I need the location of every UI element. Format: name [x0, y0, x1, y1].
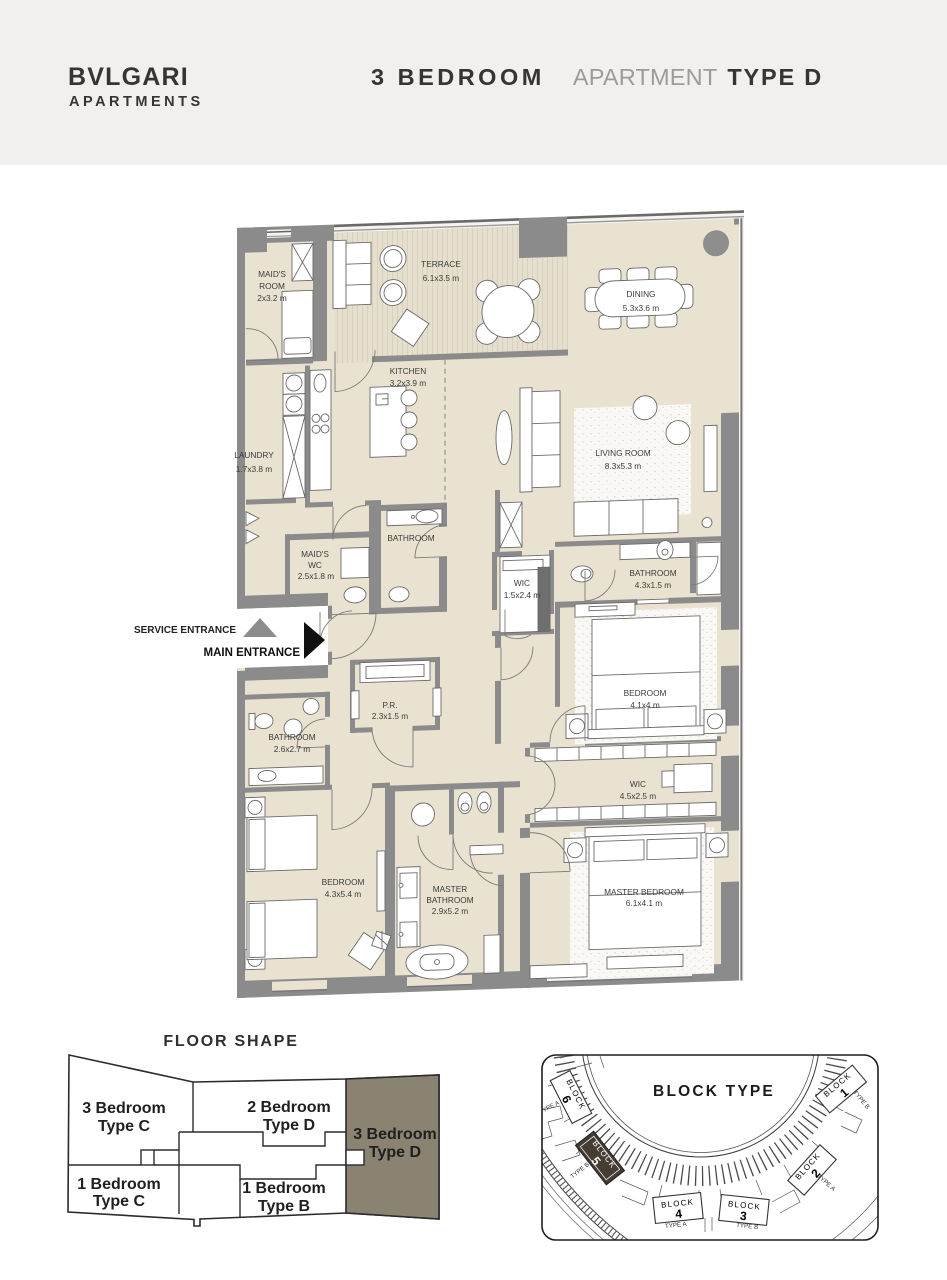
- svg-text:Type C: Type C: [98, 1118, 151, 1135]
- svg-text:ROOM: ROOM: [259, 281, 285, 291]
- svg-text:FLOOR SHAPE: FLOOR SHAPE: [163, 1033, 298, 1050]
- svg-text:Type B: Type B: [258, 1198, 310, 1215]
- svg-text:MAID'S: MAID'S: [258, 269, 286, 279]
- svg-text:DINING: DINING: [626, 289, 655, 299]
- svg-text:WC: WC: [308, 560, 322, 570]
- svg-text:4.3x5.4 m: 4.3x5.4 m: [325, 889, 362, 899]
- svg-text:Type D: Type D: [263, 1117, 315, 1134]
- svg-text:WIC: WIC: [514, 578, 530, 588]
- svg-text:2.6x2.7 m: 2.6x2.7 m: [274, 744, 311, 754]
- svg-text:BEDROOM: BEDROOM: [624, 688, 667, 698]
- svg-text:WIC: WIC: [630, 779, 646, 789]
- svg-text:2.5x1.8 m: 2.5x1.8 m: [298, 571, 335, 581]
- svg-text:2.3x1.5 m: 2.3x1.5 m: [372, 711, 409, 721]
- svg-text:5.3x3.6 m: 5.3x3.6 m: [623, 303, 660, 313]
- svg-text:2x3.2 m: 2x3.2 m: [257, 293, 287, 303]
- svg-text:1 Bedroom: 1 Bedroom: [242, 1180, 326, 1197]
- svg-text:P.R.: P.R.: [382, 700, 397, 710]
- svg-text:2 Bedroom: 2 Bedroom: [247, 1099, 331, 1116]
- svg-text:4.1x4 m: 4.1x4 m: [630, 700, 660, 710]
- svg-text:BLOCK TYPE: BLOCK TYPE: [653, 1083, 775, 1100]
- svg-text:LIVING ROOM: LIVING ROOM: [595, 448, 650, 458]
- svg-text:BATHROOM: BATHROOM: [268, 732, 315, 742]
- svg-text:MAIN ENTRANCE: MAIN ENTRANCE: [204, 647, 301, 659]
- svg-text:TERRACE: TERRACE: [421, 259, 461, 269]
- svg-text:MASTER: MASTER: [433, 884, 468, 894]
- svg-text:KITCHEN: KITCHEN: [390, 366, 426, 376]
- svg-text:BATHROOM: BATHROOM: [426, 895, 473, 905]
- svg-text:6.1x3.5 m: 6.1x3.5 m: [423, 273, 460, 283]
- svg-text:Type D: Type D: [369, 1144, 421, 1161]
- svg-text:8.3x5.3 m: 8.3x5.3 m: [605, 461, 642, 471]
- svg-text:BEDROOM: BEDROOM: [322, 877, 365, 887]
- svg-text:MAID'S: MAID'S: [301, 549, 329, 559]
- svg-text:BATHROOM: BATHROOM: [387, 533, 434, 543]
- svg-text:BATHROOM: BATHROOM: [629, 568, 676, 578]
- svg-text:3 Bedroom: 3 Bedroom: [353, 1126, 437, 1143]
- svg-text:4.5x2.5 m: 4.5x2.5 m: [620, 791, 657, 801]
- svg-text:3 Bedroom: 3 Bedroom: [82, 1100, 166, 1117]
- svg-text:3.2x3.9 m: 3.2x3.9 m: [390, 378, 427, 388]
- svg-text:LAUNDRY: LAUNDRY: [234, 450, 274, 460]
- svg-text:Type C: Type C: [93, 1193, 146, 1210]
- svg-text:MASTER BEDROOM: MASTER BEDROOM: [604, 887, 684, 897]
- svg-text:1.5x2.4 m: 1.5x2.4 m: [504, 590, 541, 600]
- svg-text:1 Bedroom: 1 Bedroom: [77, 1176, 161, 1193]
- svg-text:SERVICE ENTRANCE: SERVICE ENTRANCE: [134, 625, 236, 636]
- svg-text:2.9x5.2 m: 2.9x5.2 m: [432, 906, 469, 916]
- svg-text:1.7x3.8 m: 1.7x3.8 m: [236, 464, 273, 474]
- svg-text:6.1x4.1 m: 6.1x4.1 m: [626, 898, 663, 908]
- svg-text:4.3x1.5 m: 4.3x1.5 m: [635, 580, 672, 590]
